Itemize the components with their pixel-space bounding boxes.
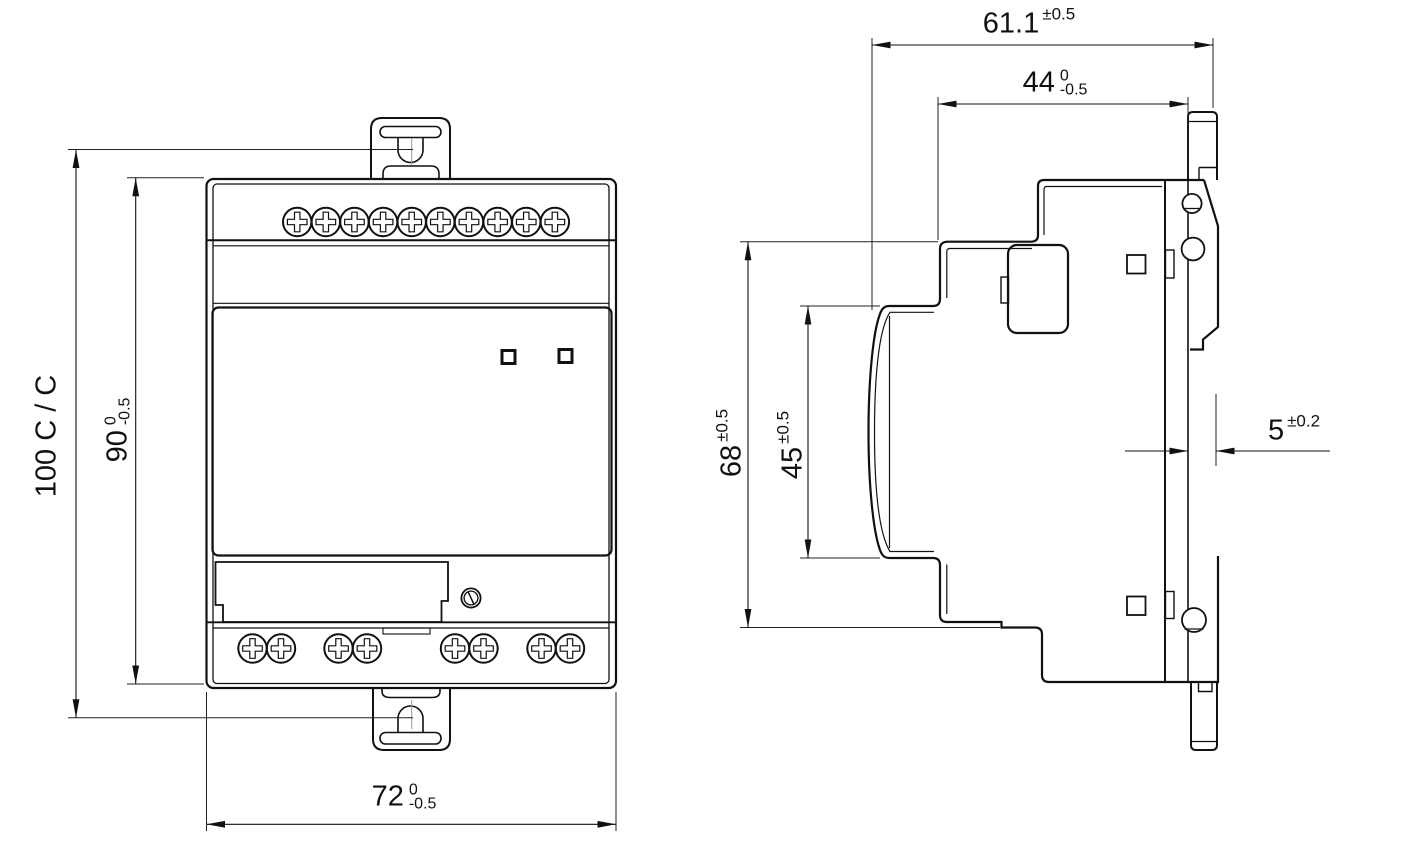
terminal-screw: [353, 634, 381, 662]
dim-value: 61.1: [983, 8, 1039, 41]
tolerance: ±0.2: [1287, 413, 1320, 430]
dim-value: 90: [102, 430, 135, 462]
mounting-holes: [1182, 194, 1206, 632]
led-indicator: [559, 350, 572, 363]
dim-value: 5: [1268, 415, 1284, 448]
dim-value: 68: [716, 445, 749, 477]
terminal-screw: [512, 208, 540, 236]
tolerance-lower: -0.5: [409, 797, 437, 811]
bottom-mounting-tab: [373, 688, 450, 750]
bottom-terminal-row: [238, 634, 584, 662]
tolerance-stack: 0 -0.5: [104, 398, 132, 426]
terminal-screw: [238, 634, 266, 662]
front-view: [207, 118, 617, 750]
tolerance: ±0.5: [714, 409, 731, 442]
dim-label-rail-depth: 5 ±0.2: [1268, 415, 1320, 448]
housing-window: [1127, 597, 1146, 616]
tolerance-lower: -0.5: [118, 398, 132, 426]
tolerance-stack: 0 -0.5: [1060, 69, 1088, 97]
dim-value: 100 C / C: [31, 375, 64, 498]
terminal-screw: [527, 634, 555, 662]
terminal-screw: [483, 208, 511, 236]
dim-value: 45: [777, 447, 810, 479]
dim-label-front-height: 45 ±0.5: [777, 411, 810, 479]
terminal-screw: [426, 208, 454, 236]
keyhole-slot-stem: [398, 706, 423, 733]
lower-slot-arc: [383, 166, 439, 178]
dim-label-body-width: 72 0 -0.5: [372, 781, 437, 814]
terminal-screw: [455, 208, 483, 236]
device-body-inner: [213, 184, 609, 684]
dim-value: 44: [1023, 67, 1055, 100]
device-body-outline: [207, 179, 617, 688]
dim-value: 72: [372, 781, 404, 814]
label-slot: [383, 628, 430, 634]
terminal-screw: [312, 208, 340, 236]
terminal-screw: [541, 208, 569, 236]
mounting-hole: [1182, 194, 1201, 213]
terminal-screw: [340, 208, 368, 236]
dimension-drawing: 100 C / C 90 0 -0.5 72 0 -0.5 61.1 ±0.5 …: [0, 0, 1405, 850]
adjustment-screw: [461, 588, 480, 607]
keyhole-slot-bar: [380, 733, 441, 745]
latch-rib: [1166, 250, 1175, 278]
mounting-hole: [1182, 238, 1205, 261]
dim-label-body-height: 90 0 -0.5: [102, 398, 135, 463]
dim-label-overall-depth: 61.1 ±0.5: [983, 8, 1075, 41]
led-indicator: [502, 351, 515, 364]
top-mounting-tab: [371, 118, 450, 179]
terminal-screw: [556, 634, 584, 662]
tolerance: ±0.5: [1042, 6, 1075, 23]
inner-wall-lines: [875, 187, 1163, 615]
front-panel: [213, 308, 612, 556]
top-terminal-row: [283, 208, 569, 236]
keyhole-slot-bar: [380, 127, 441, 138]
terminal-screw: [283, 208, 311, 236]
rail-top-tab: [1188, 112, 1217, 180]
dim-label-upper-depth: 44 0 -0.5: [1023, 67, 1088, 100]
dim-label-housing-height: 68 ±0.5: [716, 409, 749, 477]
upper-slot-arc: [382, 688, 440, 698]
terminal-screw: [398, 208, 426, 236]
housing-window: [1127, 255, 1146, 274]
terminal-cover-hatch: [216, 562, 449, 622]
tolerance-stack: 0 -0.5: [409, 783, 437, 811]
dim-label-mounting-centers: 100 C / C: [31, 375, 64, 498]
terminal-screw: [324, 634, 352, 662]
terminal-screw: [369, 208, 397, 236]
terminal-screw: [469, 634, 497, 662]
side-view: [869, 112, 1219, 750]
connector-block: [1008, 245, 1068, 333]
front-view-dimensions: [68, 150, 616, 832]
terminal-screw: [267, 634, 295, 662]
tolerance-lower: -0.5: [1060, 83, 1088, 97]
terminal-screw: [441, 634, 469, 662]
drawing-canvas: [0, 0, 1405, 850]
latch-rib: [1166, 592, 1175, 619]
din-rail-clip: [1191, 682, 1217, 750]
tolerance: ±0.5: [775, 411, 792, 444]
